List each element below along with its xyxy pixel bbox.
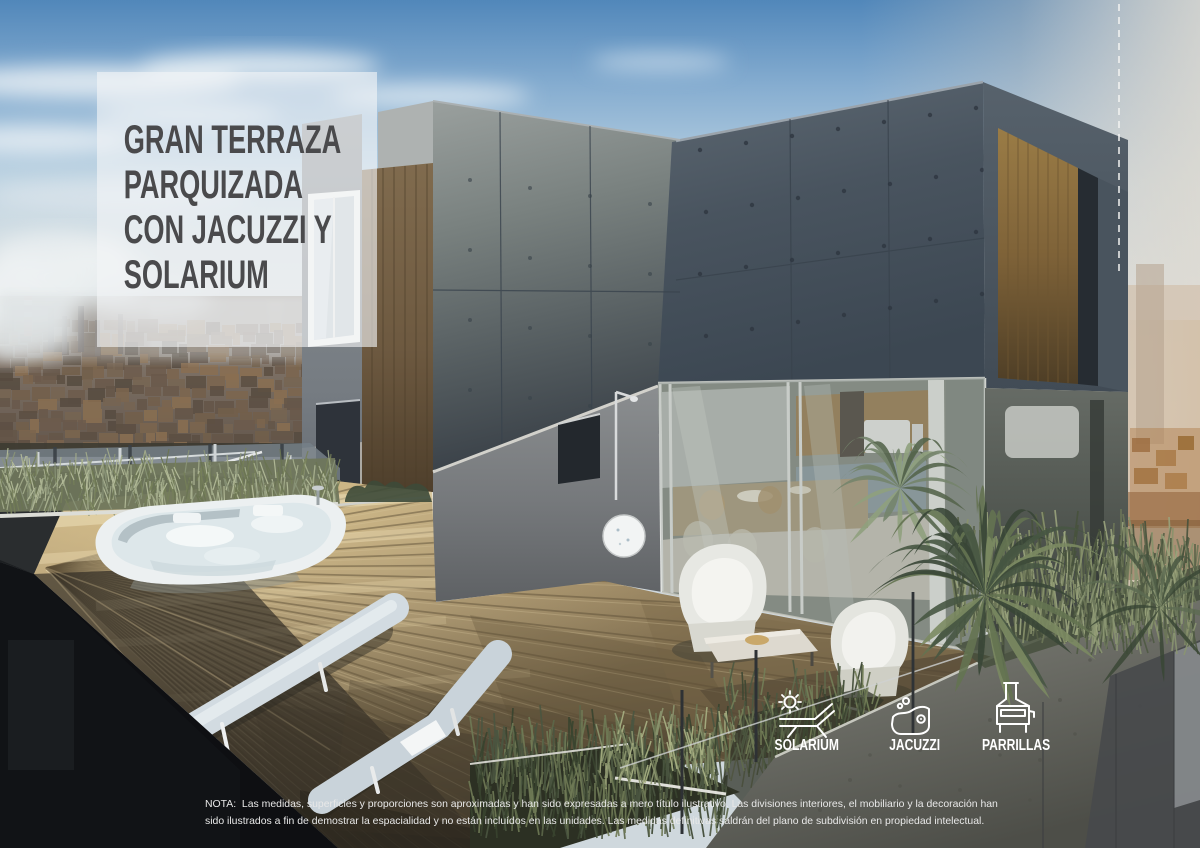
svg-text:SOLARIUM: SOLARIUM [124, 253, 269, 297]
svg-text:PARRILLAS: PARRILLAS [982, 736, 1050, 754]
svg-text:NOTA: Las medidas, superficie: NOTA: Las medidas, superficies y proporc… [205, 799, 998, 810]
svg-text:GRAN TERRAZA: GRAN TERRAZA [124, 118, 341, 162]
svg-text:CON JACUZZI Y: CON JACUZZI Y [124, 208, 332, 252]
svg-text:PARQUIZADA: PARQUIZADA [124, 163, 303, 207]
svg-text:sido ilustrados a fin de demos: sido ilustrados a fin de demostrar la es… [205, 816, 984, 827]
svg-text:SOLARIUM: SOLARIUM [775, 736, 839, 754]
svg-text:JACUZZI: JACUZZI [889, 736, 940, 754]
